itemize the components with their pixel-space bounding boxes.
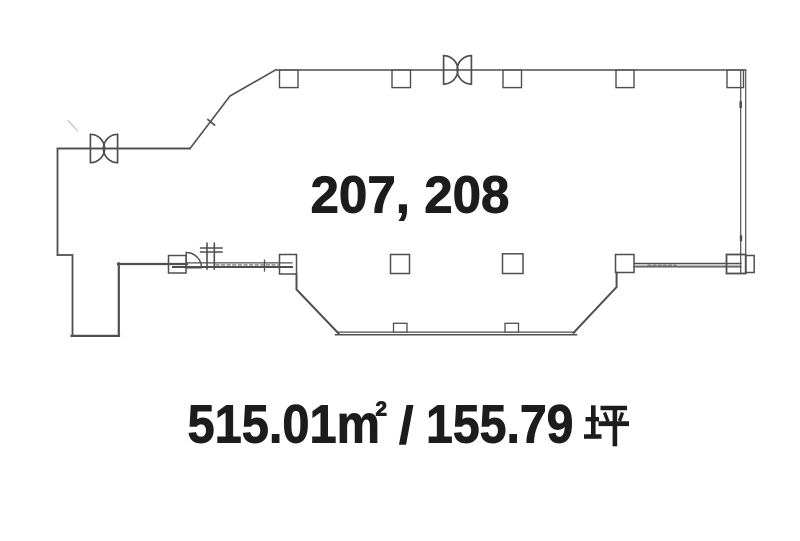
svg-text:515.01m: 515.01m (188, 396, 381, 455)
svg-text:155.79: 155.79 (426, 396, 574, 455)
svg-text:207, 208: 207, 208 (311, 167, 510, 225)
svg-text:/: / (399, 397, 413, 455)
svg-text:2: 2 (376, 399, 388, 421)
